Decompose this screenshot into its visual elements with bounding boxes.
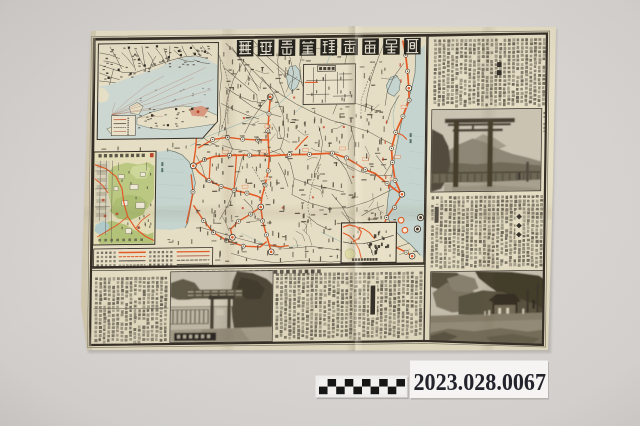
svg-text:2023.028.0067: 2023.028.0067 [414, 369, 547, 396]
